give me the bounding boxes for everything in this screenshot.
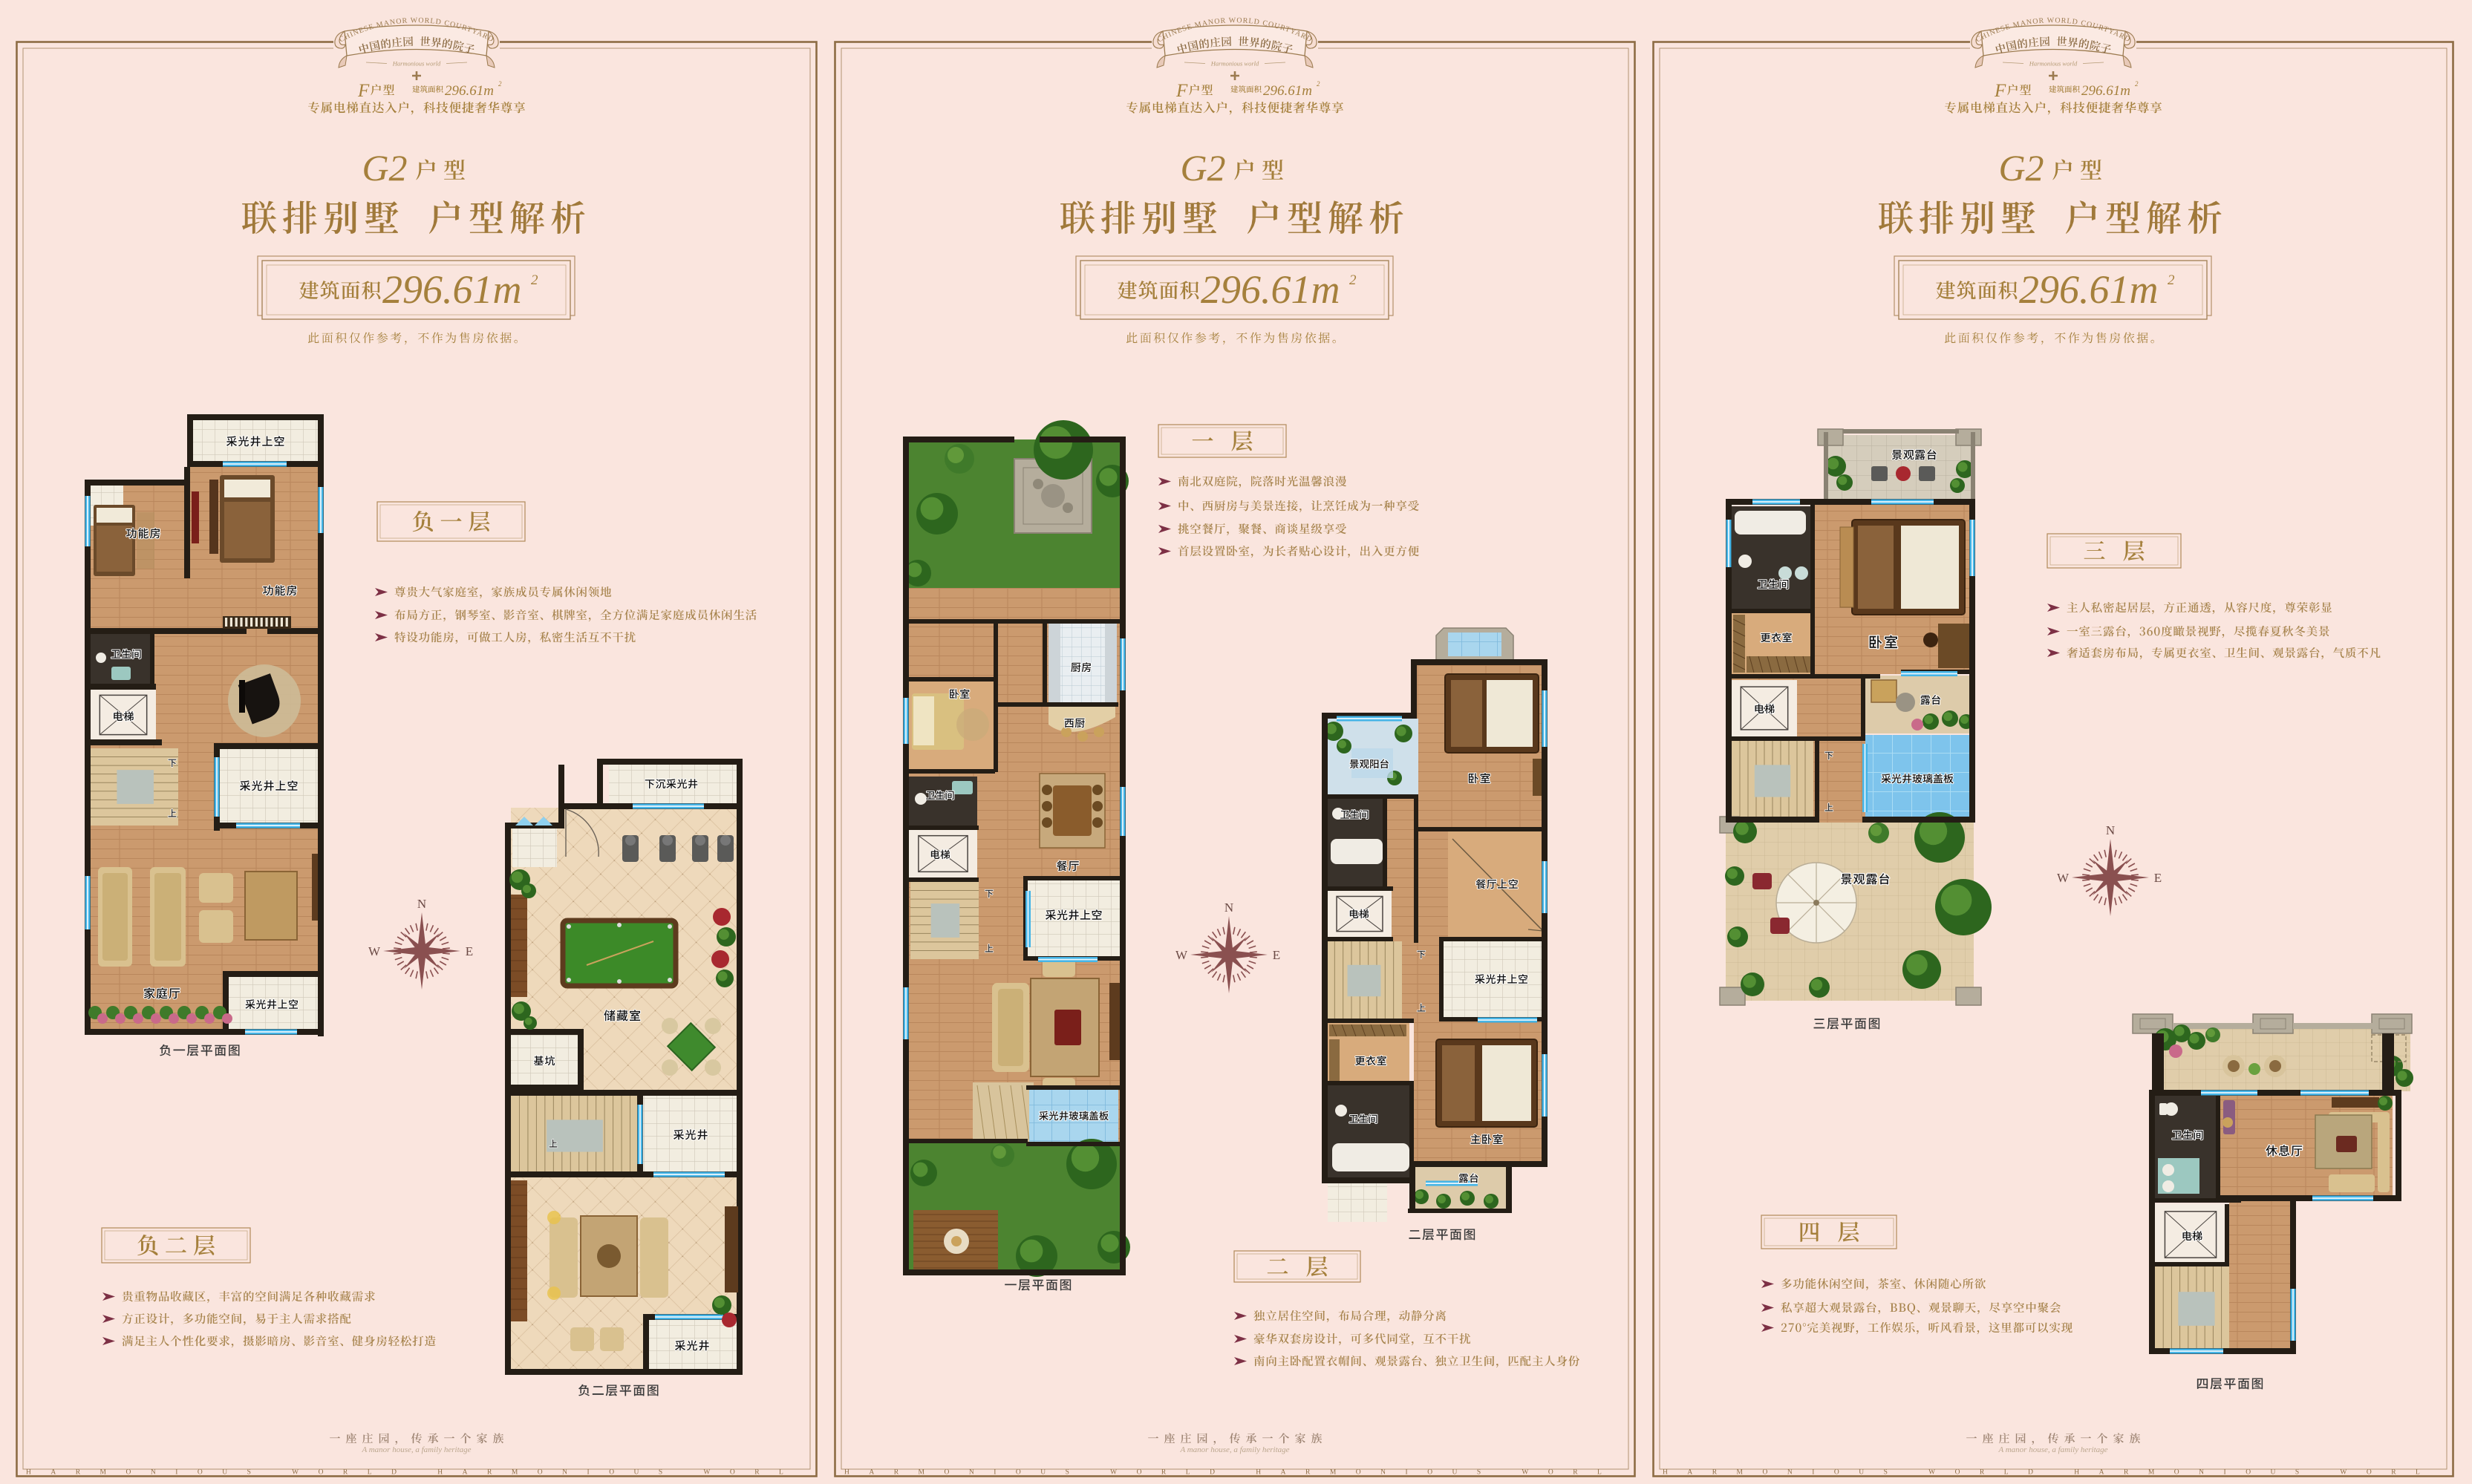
svg-text:296.61m: 296.61m (382, 267, 522, 312)
svg-text:W: W (368, 944, 381, 958)
svg-text:2: 2 (498, 80, 502, 88)
svg-text:E: E (1273, 948, 1280, 962)
svg-text:A manor house, a family herita: A manor house, a family heritage (1179, 1445, 1289, 1454)
svg-text:2: 2 (531, 272, 538, 288)
svg-text:HARMONIOUS WORLD HARMONIOUS WO: HARMONIOUS WORLD HARMONIOUS WORL (26, 1469, 803, 1477)
svg-text:W: W (1175, 948, 1188, 962)
svg-text:A manor house, a family herita: A manor house, a family heritage (1998, 1445, 2107, 1454)
svg-text:G2: G2 (1998, 147, 2044, 189)
svg-text:N: N (2106, 823, 2115, 837)
svg-text:2: 2 (1349, 272, 1357, 288)
svg-text:2: 2 (1317, 80, 1320, 88)
svg-text:N: N (1224, 900, 1233, 915)
svg-text:A manor house, a family herita: A manor house, a family heritage (361, 1445, 471, 1454)
svg-text:F: F (1994, 81, 2006, 101)
svg-text:HARMONIOUS WORLD HARMONIOUS WO: HARMONIOUS WORLD HARMONIOUS WORL (844, 1469, 1621, 1477)
svg-text:296.61m: 296.61m (2019, 267, 2159, 312)
svg-text:296.61m: 296.61m (445, 83, 494, 99)
svg-text:Harmonious world: Harmonious world (392, 60, 441, 68)
svg-text:296.61m: 296.61m (1201, 267, 1340, 312)
svg-text:G2: G2 (1180, 147, 1225, 189)
svg-text:Harmonious world: Harmonious world (1210, 60, 1259, 68)
svg-text:HARMONIOUS WORLD HARMONIOUS WO: HARMONIOUS WORLD HARMONIOUS WORL (1663, 1469, 2439, 1477)
svg-text:E: E (2154, 871, 2162, 885)
svg-text:296.61m: 296.61m (2081, 83, 2130, 99)
svg-text:G2: G2 (362, 147, 407, 189)
svg-text:Harmonious world: Harmonious world (2029, 60, 2078, 68)
svg-text:2: 2 (2135, 80, 2139, 88)
svg-text:296.61m: 296.61m (1263, 83, 1312, 99)
svg-text:2: 2 (2168, 272, 2175, 288)
svg-text:F: F (1175, 81, 1188, 101)
svg-text:F: F (357, 81, 370, 101)
svg-text:W: W (2057, 871, 2070, 885)
svg-text:E: E (466, 944, 473, 958)
svg-text:N: N (417, 897, 426, 911)
